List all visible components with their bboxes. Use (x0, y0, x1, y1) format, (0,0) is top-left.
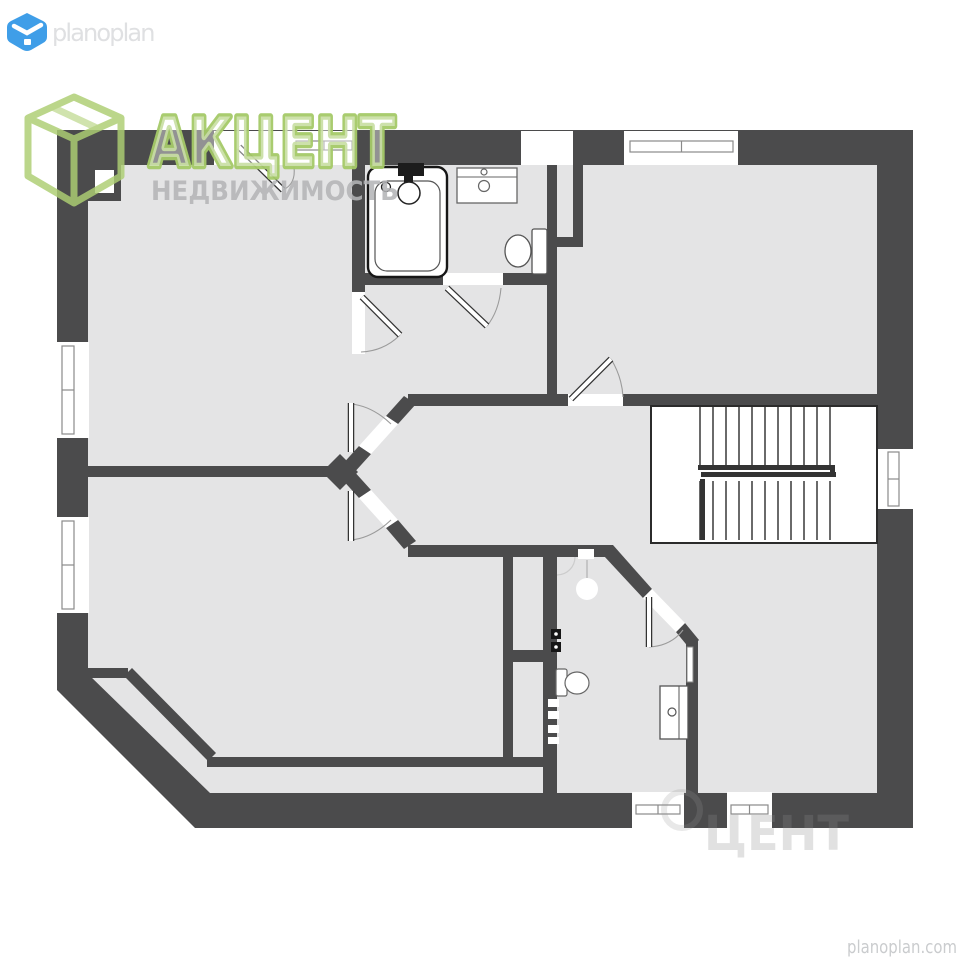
shaft-wall-bottom (503, 650, 557, 662)
wc-valve-dot-b (554, 645, 558, 649)
bath-toilet-tank (532, 229, 547, 274)
wc-radiator-a (548, 699, 559, 707)
vent-opening (521, 131, 573, 165)
akcent-subtitle: НЕДВИЖИМОСТЬ (151, 176, 399, 207)
planoplan-logo: planoplan (7, 13, 156, 51)
bath-door-b-opening (443, 273, 503, 285)
stair-handrail (830, 465, 835, 477)
wc-toilet-bowl (565, 672, 589, 694)
sink-tap-small (481, 169, 487, 175)
duct-wall-left (547, 165, 557, 247)
floorplan-page: planoplan АКЦЕНТ НЕДВИЖИМОСТЬ ЦЕНТ plano… (0, 0, 960, 960)
wc-lamp (576, 578, 598, 600)
wc-radiator-d (548, 737, 559, 744)
bathtub-faucet (398, 163, 424, 176)
bath-wall-right (547, 247, 557, 397)
bath-wall-bottom-right (503, 273, 548, 285)
planoplan-cube-notch (24, 39, 31, 45)
strip-wall-top (207, 757, 557, 767)
wc-fan (578, 549, 594, 559)
wc-radiator-b (548, 711, 559, 719)
stair-handrail (700, 479, 705, 540)
wc-valve-dot-a (554, 632, 558, 636)
bathtub-drain (398, 182, 420, 204)
wc-wall-item (687, 647, 693, 682)
rooms-divider-wall (88, 466, 342, 477)
bath-toilet-bowl (505, 235, 531, 267)
stair-handrail (698, 465, 834, 470)
floorplan-geometry (56, 130, 914, 828)
ghost-text: ЦЕНТ (704, 806, 849, 862)
hall-wall-top-left (408, 394, 568, 406)
diag-wall-stub (88, 668, 128, 678)
footer-site-text: planoplan.com (847, 938, 957, 958)
wc-radiator-c (548, 725, 559, 733)
sink-tap-large (479, 181, 490, 192)
hall-wall-top-right (623, 394, 877, 406)
floorplan-canvas: planoplan АКЦЕНТ НЕДВИЖИМОСТЬ ЦЕНТ plano… (0, 0, 960, 960)
wc-sink-cabinet (660, 686, 688, 739)
stair-handrail (701, 472, 836, 477)
duct-wall-right (573, 165, 583, 247)
akcent-title: АКЦЕНТ (149, 104, 395, 183)
planoplan-logo-text: planoplan (52, 19, 156, 47)
duct-wall-bottom (547, 237, 583, 247)
